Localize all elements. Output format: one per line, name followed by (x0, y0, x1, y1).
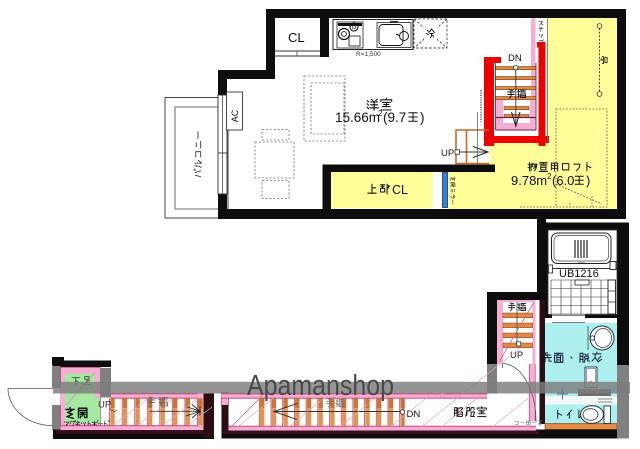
svg-text:Apamanshop: Apamanshop (247, 370, 394, 402)
svg-text:15.66m: 15.66m (335, 110, 380, 125)
svg-text:R=1,500: R=1,500 (356, 51, 381, 58)
svg-text:(9.7: (9.7 (383, 110, 406, 125)
svg-text:(6.0: (6.0 (552, 173, 574, 188)
svg-text:UP: UP (441, 148, 454, 159)
svg-text:UP: UP (510, 350, 523, 361)
svg-text:DN: DN (407, 409, 421, 420)
svg-text:CL: CL (392, 183, 408, 197)
svg-text:AC: AC (230, 109, 240, 122)
svg-text:DN: DN (508, 53, 522, 64)
svg-text:): ) (586, 173, 590, 188)
svg-text:CL: CL (288, 30, 305, 45)
svg-text:UB1216: UB1216 (559, 268, 599, 280)
svg-text:): ) (420, 110, 425, 125)
svg-text:UP: UP (98, 400, 111, 411)
svg-text:9.78m: 9.78m (511, 173, 547, 188)
